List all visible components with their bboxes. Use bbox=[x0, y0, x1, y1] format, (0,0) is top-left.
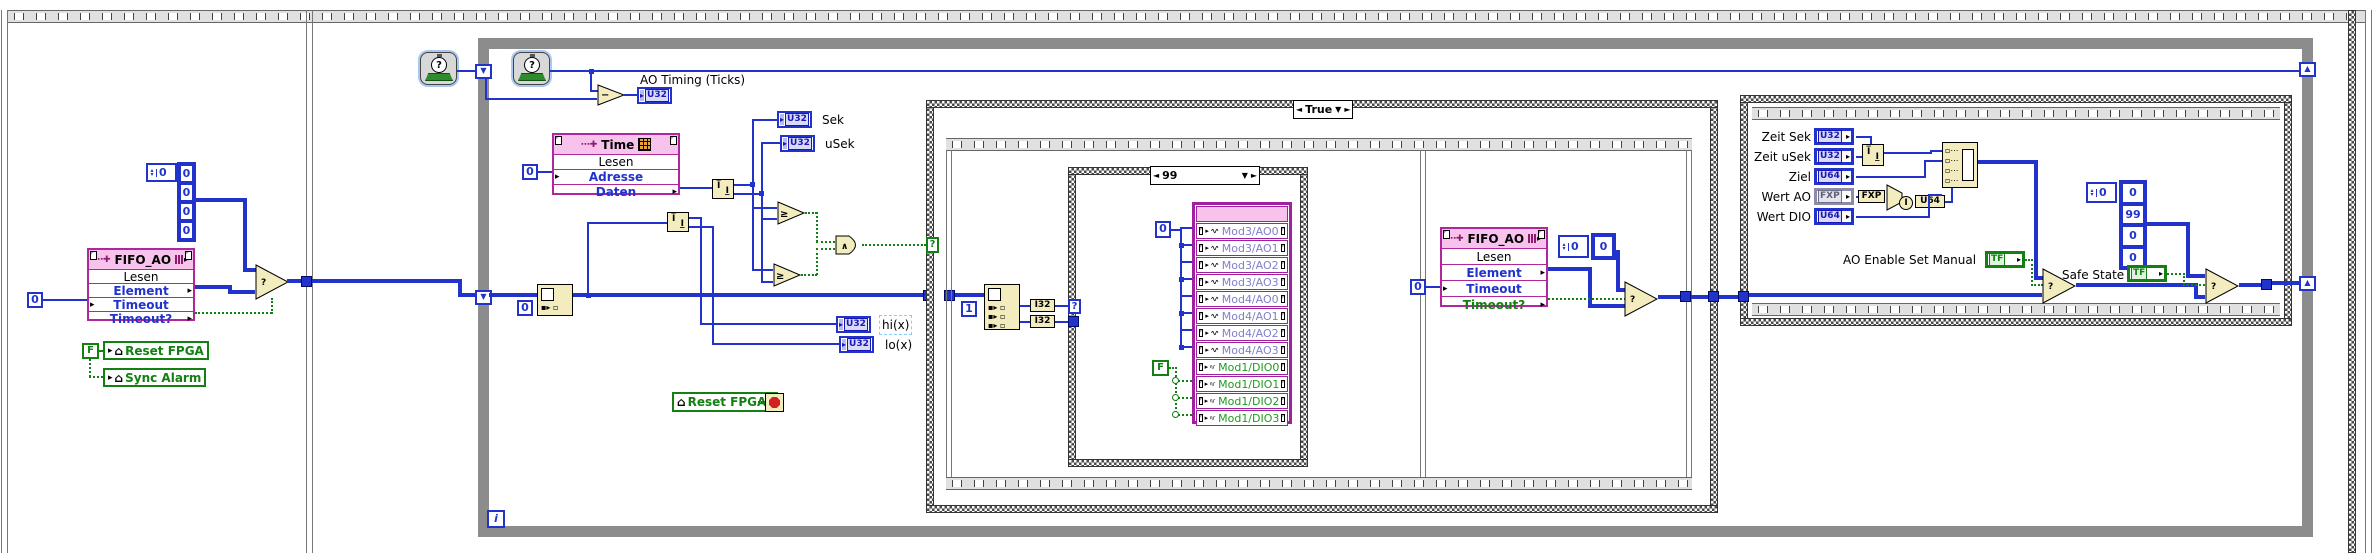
wire bbox=[1180, 227, 1192, 229]
memory-row[interactable]: Daten ▸ bbox=[554, 184, 678, 199]
array-wire bbox=[1548, 267, 1592, 271]
wire bbox=[1924, 160, 1942, 162]
input-arrow-icon: ▸ bbox=[1205, 363, 1209, 371]
fxp-coercion[interactable]: FXP bbox=[1858, 190, 1885, 203]
ao-enable-label[interactable]: AO Enable Set Manual bbox=[1843, 253, 1976, 267]
safe-state-control[interactable]: TF▸ bbox=[2127, 265, 2167, 282]
fifo-row[interactable]: Lesen bbox=[89, 270, 193, 283]
digital-wave-icon bbox=[1210, 362, 1216, 372]
array-constant[interactable]: 0 bbox=[1591, 233, 1616, 260]
fifo-node-title[interactable]: FIFO_AO bbox=[1467, 232, 1524, 246]
tick-count-node[interactable]: ? bbox=[513, 52, 550, 85]
wire bbox=[43, 299, 87, 301]
time-node-title[interactable]: Time bbox=[601, 138, 634, 152]
page-icon bbox=[1281, 312, 1285, 320]
control-terminal[interactable]: U64▸ bbox=[1814, 168, 1854, 185]
input-arrow-icon: ▸ bbox=[1205, 346, 1209, 354]
while-loop-bottom-border[interactable] bbox=[478, 526, 2313, 537]
input-arrow-icon: ▸ bbox=[1205, 329, 1209, 337]
input-arrow-icon: ▸ bbox=[1443, 284, 1448, 294]
page-icon bbox=[1199, 312, 1203, 320]
io-channel-row[interactable]: ▸ Mod4/AO0 bbox=[1196, 291, 1288, 307]
wire bbox=[624, 94, 637, 96]
wire bbox=[538, 171, 552, 173]
timing-controls-group: Zeit Sek U32▸ Zeit uSek U32▸ Ziel U64▸ bbox=[1733, 128, 1863, 228]
wire bbox=[1928, 194, 1930, 218]
index-spinner-icon[interactable]: ▴▾ bbox=[2088, 189, 2097, 197]
array-wire bbox=[955, 293, 985, 297]
build-array-function[interactable]: ▫⋯ ▫⋯ ▫⋯ ▫⋯ bbox=[1942, 142, 1978, 188]
array-index-display[interactable]: ▴▾ 0 bbox=[2086, 182, 2117, 203]
wire bbox=[752, 119, 777, 121]
hix-indicator[interactable]: ▸ U32 bbox=[836, 316, 871, 333]
time-memory-node[interactable]: ⋯✚ Time Lesen Adresse ▸ Da bbox=[552, 133, 680, 195]
io-node-header bbox=[1196, 206, 1288, 222]
page-icon bbox=[1199, 414, 1203, 422]
io-channel-row[interactable]: ▸ Mod3/AO3 bbox=[1196, 274, 1288, 290]
array-wire bbox=[2239, 283, 2263, 287]
wire bbox=[1180, 261, 1192, 263]
tunnel[interactable] bbox=[1738, 291, 1749, 302]
sequence-left-border-inner bbox=[7, 10, 8, 553]
input-arrow-icon: ▸ bbox=[1205, 244, 1209, 252]
while-loop-left-border[interactable] bbox=[478, 38, 489, 537]
io-channel-row[interactable]: ▸ Mod3/AO2 bbox=[1196, 257, 1288, 273]
input-arrow-icon: ▸ bbox=[90, 300, 95, 310]
wire-junction bbox=[1179, 345, 1184, 350]
memory-row[interactable]: Adresse ▸ bbox=[554, 169, 678, 184]
ao-zero-constant[interactable]: 0 bbox=[1155, 221, 1171, 238]
select-function[interactable]: ? bbox=[255, 264, 289, 300]
analog-wave-icon bbox=[1211, 311, 1220, 321]
shift-register-right-top[interactable]: ▲ bbox=[2299, 62, 2316, 77]
page-icon bbox=[1199, 227, 1203, 235]
control-terminal[interactable]: U32▸ bbox=[1814, 148, 1854, 165]
io-channel-row[interactable]: ▸ Mod1/DIO2 bbox=[1196, 393, 1288, 409]
wire bbox=[550, 70, 2299, 72]
io-output-node[interactable]: ▸ Mod3/AO0 ▸ Mod3/AO1 bbox=[1192, 202, 1292, 424]
page-icon bbox=[90, 251, 97, 260]
output-arrow-icon: ▸ bbox=[187, 286, 192, 296]
page-icon bbox=[1281, 278, 1285, 286]
output-arrow-icon: ▸ bbox=[1540, 300, 1545, 310]
inner-case-selector-terminal[interactable]: ? bbox=[1068, 299, 1081, 314]
page-icon bbox=[1281, 295, 1285, 303]
output-arrow-icon: ▸ bbox=[2017, 255, 2021, 264]
output-arrow-icon: ▸ bbox=[1846, 132, 1850, 141]
while-loop-top-border[interactable] bbox=[478, 38, 2313, 49]
select-function[interactable]: ? bbox=[2205, 268, 2239, 304]
sek-indicator[interactable]: ▸ U32 bbox=[777, 111, 812, 128]
and-function[interactable]: ∧ bbox=[835, 235, 863, 255]
control-label[interactable]: Ziel bbox=[1733, 170, 1814, 184]
output-arrow-icon: ▸ bbox=[1846, 172, 1850, 181]
shift-register-left-top[interactable]: ▼ bbox=[475, 64, 492, 79]
page-icon bbox=[555, 136, 562, 145]
digital-wave-icon bbox=[1210, 379, 1216, 389]
boolean-junction bbox=[1172, 394, 1179, 401]
control-label[interactable]: Zeit Sek bbox=[1733, 130, 1814, 144]
array-wire bbox=[1658, 295, 1682, 299]
fifo-row[interactable]: Element ▸ bbox=[89, 283, 193, 297]
array-wire bbox=[1719, 295, 1740, 299]
usek-indicator[interactable]: ▸ U32 bbox=[780, 135, 815, 152]
io-channel-row[interactable]: ▸ Mod4/AO3 bbox=[1196, 342, 1288, 358]
page-icon bbox=[1199, 363, 1203, 371]
input-arrow-icon: ▸ bbox=[1205, 278, 1209, 286]
svg-text:?: ? bbox=[2048, 282, 2053, 292]
page-icon bbox=[1443, 230, 1450, 239]
control-row: Wert DIO U64▸ bbox=[1733, 208, 1863, 225]
wire bbox=[587, 222, 667, 224]
control-label[interactable]: Wert DIO bbox=[1733, 210, 1814, 224]
input-arrow-icon: ▸ bbox=[1205, 227, 1209, 235]
array-index-value[interactable]: 0 bbox=[157, 166, 175, 179]
page-icon bbox=[1199, 261, 1203, 269]
fifo-row[interactable]: Element ▸ bbox=[1442, 264, 1546, 280]
reset-fpga-write-local[interactable]: ▸ ⌂ Reset FPGA bbox=[103, 341, 209, 360]
wire bbox=[195, 285, 230, 289]
fifo-row[interactable]: Lesen bbox=[1442, 249, 1546, 264]
fifo-ao-read-node[interactable]: ⋯✚ FIFO_AO ▸ Lesen Element ▸ bbox=[87, 248, 195, 321]
io-channel-row[interactable]: ▸ Mod1/DIO1 bbox=[1196, 376, 1288, 392]
control-terminal[interactable]: U64▸ bbox=[1814, 208, 1854, 225]
greater-equal-function[interactable]: ≥ bbox=[777, 201, 805, 225]
subtract-function[interactable]: − bbox=[597, 84, 625, 106]
index-array-function[interactable]: ▪▸ ▫ ▪▸ ▫ ▪▸ ▫ bbox=[984, 284, 1020, 330]
wire bbox=[587, 222, 589, 297]
memory-grid-icon bbox=[638, 138, 651, 151]
usek-label[interactable]: uSek bbox=[825, 137, 855, 151]
tunnel[interactable] bbox=[2261, 279, 2272, 290]
split-number-function[interactable]: I̅I̲ bbox=[667, 212, 689, 232]
right-case-right-border[interactable] bbox=[2284, 95, 2292, 326]
false-constant[interactable]: F bbox=[82, 343, 99, 359]
tunnel[interactable] bbox=[1680, 291, 1691, 302]
inner-case-selector-label[interactable]: ◄ 99 ▼ ► bbox=[1150, 166, 1260, 185]
analog-wave-icon bbox=[1211, 260, 1220, 270]
indicator-arrow-icon: ▸ bbox=[783, 138, 787, 149]
wire bbox=[752, 119, 754, 271]
boolean-wire bbox=[195, 312, 272, 314]
input-arrow-icon: ▸ bbox=[1205, 261, 1209, 269]
right-sequence-top-border[interactable] bbox=[1752, 107, 2280, 120]
inner-case-bottom-border[interactable] bbox=[1068, 459, 1308, 467]
array-wire bbox=[1749, 293, 2042, 297]
inner-case-right-border[interactable] bbox=[1300, 167, 1308, 467]
sequence-top-border[interactable] bbox=[8, 10, 2366, 23]
split-number-function[interactable]: I̅I̲ bbox=[712, 179, 734, 199]
indicator-arrow-icon: ▸ bbox=[640, 90, 644, 101]
array-wire bbox=[2272, 281, 2299, 285]
output-arrow-icon: ▸ bbox=[2159, 269, 2163, 278]
address-constant[interactable]: 0 bbox=[522, 164, 538, 180]
indicator-arrow-icon: ▸ bbox=[839, 319, 843, 330]
page-icon bbox=[1281, 363, 1285, 371]
index-array-function[interactable]: ▪▸ ▫ bbox=[537, 284, 573, 316]
fifo-node-title[interactable]: FIFO_AO bbox=[114, 253, 171, 267]
page-icon bbox=[1199, 278, 1203, 286]
io-channel-row[interactable]: ▸ Mod1/DIO3 bbox=[1196, 410, 1288, 426]
fpga-chip-icon bbox=[425, 73, 453, 81]
boolean-wire bbox=[2031, 259, 2033, 286]
array-element[interactable]: 0 bbox=[180, 184, 193, 201]
analog-wave-icon bbox=[1211, 345, 1220, 355]
fifo-row[interactable]: Timeout ▸ bbox=[1442, 280, 1546, 296]
ao-timing-label[interactable]: AO Timing (Ticks) bbox=[640, 73, 745, 87]
page-icon bbox=[185, 251, 192, 260]
sequence-right-border[interactable] bbox=[2371, 10, 2372, 553]
greater-equal-function[interactable]: ≥ bbox=[773, 263, 801, 287]
array-element[interactable]: 0 bbox=[2122, 226, 2144, 246]
wire bbox=[712, 343, 839, 345]
next-case-icon[interactable]: ► bbox=[1344, 105, 1350, 114]
hix-label[interactable]: hi(x) bbox=[882, 318, 909, 332]
wire bbox=[700, 323, 836, 325]
memory-row[interactable]: Lesen bbox=[554, 155, 678, 169]
sek-label[interactable]: Sek bbox=[822, 113, 844, 127]
array-element[interactable]: 0 bbox=[2122, 183, 2144, 203]
boolean-junction bbox=[1172, 411, 1179, 418]
boolean-wire bbox=[816, 212, 818, 242]
tick-count-node[interactable]: ? bbox=[420, 52, 457, 85]
index-constant[interactable]: 0 bbox=[517, 300, 533, 316]
array-index-display[interactable]: ▴▾ 0 bbox=[146, 163, 177, 182]
wire bbox=[228, 290, 255, 294]
wire bbox=[752, 207, 777, 209]
wire bbox=[1856, 216, 1930, 218]
page-icon bbox=[1281, 244, 1285, 252]
write-icon: ⋯✚ bbox=[581, 140, 598, 150]
previous-case-icon[interactable]: ◄ bbox=[1296, 105, 1302, 114]
fpga-chip-icon bbox=[518, 73, 546, 81]
lox-indicator[interactable]: ▸ U32 bbox=[839, 336, 874, 353]
io-channel-row[interactable]: ▸ Mod4/AO2 bbox=[1196, 325, 1288, 341]
page-icon bbox=[1281, 346, 1285, 354]
control-row: Ziel U64▸ bbox=[1733, 168, 1863, 185]
u64-coercion[interactable]: U64 bbox=[1915, 195, 1945, 208]
page-icon bbox=[1281, 397, 1285, 405]
right-sequence-bottom-border[interactable] bbox=[1752, 303, 2280, 316]
io-channel-row[interactable]: ▸ Mod4/AO1 bbox=[1196, 308, 1288, 324]
analog-wave-icon bbox=[1211, 277, 1220, 287]
right-case-top-border[interactable] bbox=[1740, 95, 2292, 103]
boolean-wire bbox=[801, 274, 817, 276]
case-selector-terminal[interactable]: ? bbox=[926, 237, 939, 253]
tunnel[interactable] bbox=[301, 276, 312, 287]
array-wire bbox=[1588, 267, 1592, 308]
svg-text:−: − bbox=[601, 90, 609, 101]
page-icon bbox=[1199, 380, 1203, 388]
boolean-wire bbox=[862, 244, 926, 246]
output-arrow-icon: ▸ bbox=[672, 187, 677, 197]
ao-timing-indicator[interactable]: ▸ U32 bbox=[637, 87, 672, 104]
indicator-arrow-icon: ▸ bbox=[842, 339, 846, 350]
control-label[interactable]: Zeit uSek bbox=[1733, 150, 1814, 164]
array-wire bbox=[573, 293, 926, 297]
svg-text:∧: ∧ bbox=[841, 242, 848, 252]
outer-case-right-border[interactable] bbox=[2348, 10, 2356, 553]
output-arrow-icon: ▸ bbox=[187, 314, 192, 324]
wire-junction bbox=[586, 293, 591, 298]
wire bbox=[1930, 150, 1942, 152]
one-constant[interactable]: 1 bbox=[961, 301, 977, 317]
dio-false-constant[interactable]: F bbox=[1152, 360, 1169, 376]
case-dropdown-icon[interactable]: ▼ bbox=[1335, 105, 1341, 114]
array-element[interactable]: 99 bbox=[2122, 205, 2144, 225]
page-icon bbox=[1538, 230, 1545, 239]
page-icon bbox=[1199, 329, 1203, 337]
array-wire bbox=[1588, 304, 1626, 308]
case-selector-label[interactable]: ◄ True ▼ ► bbox=[1293, 100, 1353, 119]
case-structure-right-border[interactable] bbox=[1710, 100, 1718, 513]
wire bbox=[1180, 329, 1192, 331]
page-icon bbox=[1281, 227, 1285, 235]
wire bbox=[761, 281, 773, 283]
array-index-display[interactable]: ▴▾ 0 bbox=[1558, 235, 1589, 258]
input-arrow-icon: ▸ bbox=[555, 172, 560, 182]
array-index-value[interactable]: 0 bbox=[2097, 186, 2115, 199]
wire bbox=[312, 279, 460, 283]
svg-text:?: ? bbox=[1630, 295, 1635, 305]
home-icon: ⌂ bbox=[115, 344, 124, 358]
wire-junction bbox=[1179, 311, 1184, 316]
timeout-constant[interactable]: 0 bbox=[1410, 279, 1426, 295]
wire bbox=[243, 198, 247, 270]
array-index-value[interactable]: 0 bbox=[1569, 240, 1587, 253]
inner-sequence-divider-inner bbox=[1425, 150, 1426, 477]
output-arrow-icon: ▸ bbox=[1540, 268, 1545, 278]
fifo-ao-read-node[interactable]: ⋯✚ FIFO_AO ▸ Lesen Element ▸ bbox=[1440, 227, 1548, 307]
io-channel-row[interactable]: ▸ Mod3/AO0 bbox=[1196, 223, 1288, 239]
to-i32-conversion[interactable]: I32 bbox=[1030, 315, 1055, 328]
timeout-constant[interactable]: 0 bbox=[27, 292, 43, 308]
case-dropdown-icon[interactable]: ▼ bbox=[1242, 171, 1248, 180]
array-element[interactable]: 0 bbox=[1594, 236, 1613, 257]
array-wire bbox=[2194, 295, 2205, 299]
next-case-icon[interactable]: ► bbox=[1251, 171, 1257, 180]
tunnel[interactable] bbox=[1068, 316, 1079, 327]
array-element[interactable]: 0 bbox=[180, 203, 193, 220]
boolean-wire bbox=[89, 376, 103, 378]
wire bbox=[590, 70, 592, 91]
wire bbox=[1924, 160, 1926, 178]
control-row: Zeit Sek U32▸ bbox=[1733, 128, 1863, 145]
page-icon bbox=[1199, 397, 1203, 405]
fifo-row[interactable]: Timeout ▸ bbox=[89, 297, 193, 311]
inner-sequence-top-border[interactable] bbox=[946, 138, 1692, 151]
case-structure-bottom-border[interactable] bbox=[926, 505, 1718, 513]
array-wire bbox=[1978, 160, 2038, 164]
inner-sequence-divider[interactable] bbox=[1420, 150, 1421, 477]
home-icon: ⌂ bbox=[115, 371, 124, 385]
wire bbox=[689, 226, 714, 228]
ao-enable-control[interactable]: TF▸ bbox=[1985, 251, 2025, 268]
wire bbox=[485, 98, 597, 100]
lox-label[interactable]: lo(x) bbox=[885, 338, 912, 352]
page-icon bbox=[1281, 261, 1285, 269]
input-arrow-icon: ▸ bbox=[1205, 397, 1209, 405]
case-structure-left-border[interactable] bbox=[926, 100, 934, 513]
io-channel-row[interactable]: ▸ Mod3/AO1 bbox=[1196, 240, 1288, 256]
boolean-wire bbox=[816, 248, 835, 250]
array-wire bbox=[2186, 222, 2190, 278]
svg-text:≥: ≥ bbox=[780, 209, 788, 220]
boolean-wire bbox=[89, 359, 91, 377]
wire-junction bbox=[1179, 277, 1184, 282]
wire bbox=[195, 198, 247, 202]
to-i32-conversion[interactable]: I32 bbox=[1030, 299, 1055, 312]
analog-wave-icon bbox=[1211, 243, 1220, 253]
control-terminal[interactable]: FXP▸ bbox=[1814, 188, 1854, 205]
inner-sequence-right-edge-inner bbox=[1686, 150, 1687, 477]
input-arrow-icon: ▸ bbox=[1205, 312, 1209, 320]
home-icon: ⌂ bbox=[677, 395, 686, 409]
io-channel-row[interactable]: ▸ Mod1/DIO0 bbox=[1196, 359, 1288, 375]
right-case-bottom-border[interactable] bbox=[1740, 318, 2292, 326]
safe-state-label[interactable]: Safe State bbox=[2062, 268, 2124, 282]
join-numbers-function[interactable]: I̅I̲ bbox=[1862, 144, 1884, 166]
array-wire bbox=[2186, 274, 2205, 278]
boolean-wire bbox=[1548, 298, 1626, 300]
array-element[interactable]: 0 bbox=[180, 165, 193, 182]
sync-alarm-write-local[interactable]: ▸ ⌂ Sync Alarm bbox=[103, 368, 206, 387]
wire bbox=[712, 226, 714, 345]
fifo-row[interactable]: Timeout? ▸ bbox=[89, 311, 193, 325]
index-spinner-icon[interactable]: ▴▾ bbox=[148, 169, 157, 177]
tunnel[interactable] bbox=[1708, 291, 1719, 302]
control-terminal[interactable]: U32▸ bbox=[1814, 128, 1854, 145]
shift-register-right-mid[interactable]: ▲ bbox=[2299, 276, 2316, 291]
select-function[interactable]: ? bbox=[1624, 281, 1658, 317]
wire bbox=[680, 187, 712, 189]
safe-state-array-constant[interactable]: 09900 bbox=[2119, 180, 2147, 270]
previous-case-icon[interactable]: ◄ bbox=[1153, 171, 1159, 180]
fifo-row[interactable]: Timeout? ▸ bbox=[1442, 296, 1546, 312]
array-constant[interactable]: 0000 bbox=[177, 162, 196, 242]
wire bbox=[752, 269, 773, 271]
loop-stop-terminal[interactable] bbox=[765, 393, 784, 412]
inner-sequence-left-edge bbox=[946, 150, 947, 477]
sequence-left-border[interactable] bbox=[1, 10, 2, 553]
input-arrow-icon: ▸ bbox=[1205, 295, 1209, 303]
svg-text:≥: ≥ bbox=[776, 271, 784, 282]
analog-wave-icon bbox=[1211, 328, 1220, 338]
sequence-right-border-inner bbox=[2365, 10, 2366, 553]
input-arrow-icon: ▸ bbox=[108, 346, 113, 356]
svg-text:?: ? bbox=[261, 278, 266, 288]
index-spinner-icon[interactable]: ▴▾ bbox=[1560, 243, 1569, 251]
wire bbox=[1884, 152, 1932, 154]
array-element[interactable]: 0 bbox=[180, 222, 193, 239]
wire bbox=[457, 70, 475, 72]
boolean-wire bbox=[271, 298, 273, 314]
inner-sequence-bottom-border[interactable] bbox=[946, 477, 1692, 490]
page-icon bbox=[1281, 380, 1285, 388]
loop-iteration-terminal[interactable]: i bbox=[487, 510, 505, 528]
wire bbox=[761, 218, 777, 220]
wire bbox=[700, 217, 702, 325]
indicator-arrow-icon: ▸ bbox=[780, 114, 784, 125]
inner-sequence-right-edge bbox=[1691, 150, 1692, 477]
integer-cast-icon: I bbox=[1899, 196, 1913, 210]
page-icon bbox=[670, 136, 677, 145]
wire bbox=[485, 79, 487, 100]
wire bbox=[1951, 186, 1953, 203]
output-arrow-icon: ▸ bbox=[1846, 152, 1850, 161]
inner-sequence-left-edge-inner bbox=[951, 150, 952, 477]
control-label[interactable]: Wert AO bbox=[1733, 190, 1814, 204]
